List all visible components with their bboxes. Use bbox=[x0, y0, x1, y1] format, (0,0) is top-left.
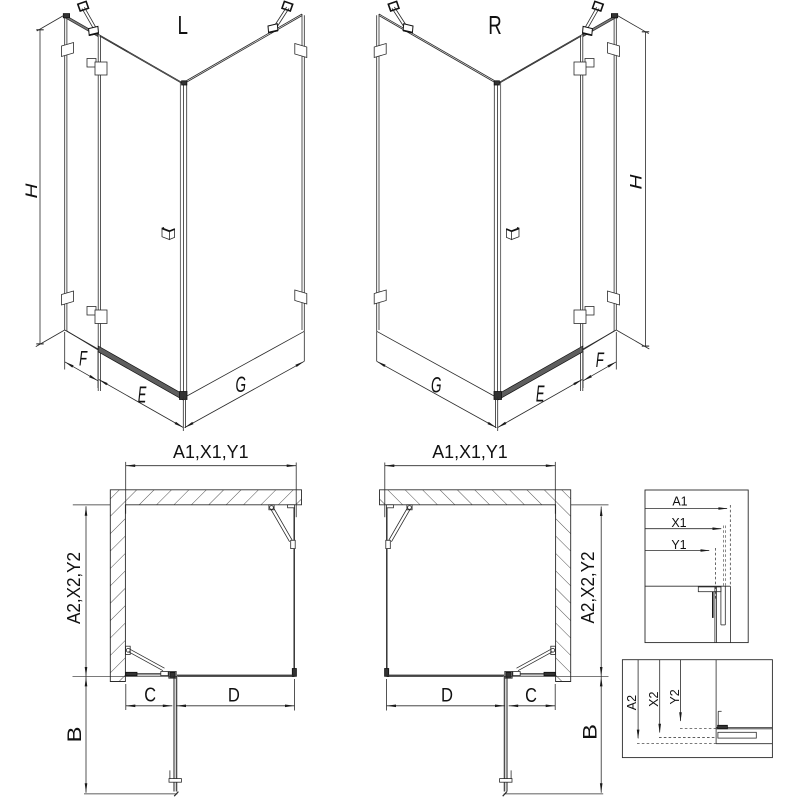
svg-text:L: L bbox=[178, 10, 189, 40]
svg-text:X2: X2 bbox=[647, 692, 661, 707]
svg-text:H: H bbox=[22, 183, 41, 199]
svg-text:Y1: Y1 bbox=[671, 538, 686, 552]
svg-text:R: R bbox=[488, 10, 502, 40]
svg-text:D: D bbox=[228, 686, 240, 707]
svg-text:A2,X2,Y2: A2,X2,Y2 bbox=[578, 552, 598, 624]
svg-text:A1,X1,Y1: A1,X1,Y1 bbox=[432, 442, 508, 462]
svg-text:A1: A1 bbox=[672, 495, 687, 509]
svg-text:A2,X2,Y2: A2,X2,Y2 bbox=[64, 552, 84, 624]
svg-text:B: B bbox=[65, 727, 86, 743]
svg-text:B: B bbox=[581, 724, 602, 740]
svg-text:E: E bbox=[536, 381, 545, 407]
svg-text:A2: A2 bbox=[625, 695, 639, 710]
svg-text:E: E bbox=[138, 382, 147, 408]
svg-text:Y2: Y2 bbox=[668, 689, 682, 704]
svg-text:A1,X1,Y1: A1,X1,Y1 bbox=[173, 442, 249, 462]
svg-text:H: H bbox=[626, 174, 645, 190]
svg-text:C: C bbox=[144, 685, 156, 707]
svg-text:F: F bbox=[79, 348, 88, 371]
svg-text:C: C bbox=[525, 685, 537, 707]
svg-text:G: G bbox=[431, 373, 442, 398]
svg-text:D: D bbox=[441, 686, 453, 707]
svg-text:G: G bbox=[236, 372, 247, 397]
svg-text:X1: X1 bbox=[671, 516, 686, 530]
svg-text:F: F bbox=[596, 349, 605, 372]
